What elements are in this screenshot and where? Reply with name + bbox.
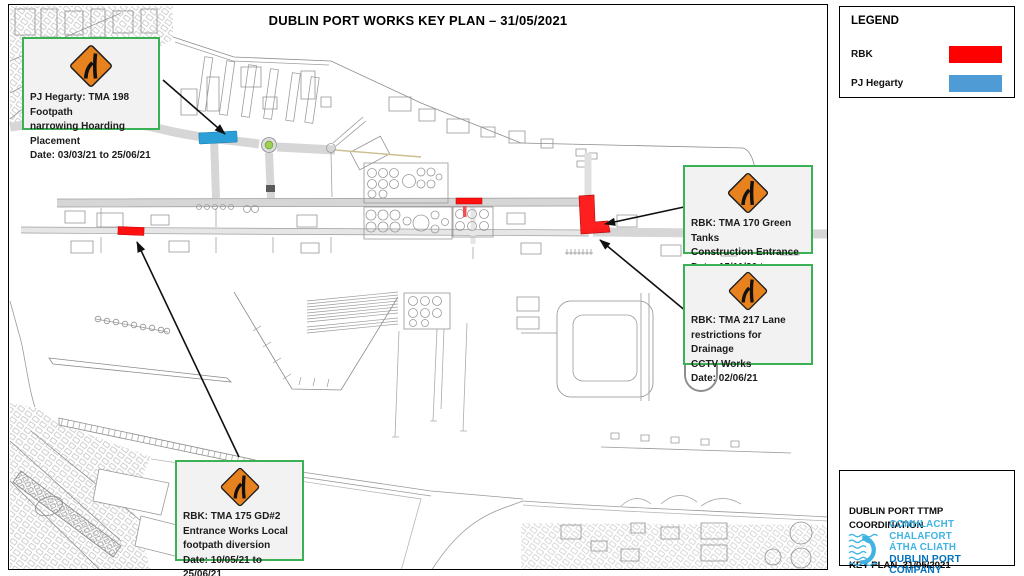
page-title: DUBLIN PORT WORKS KEY PLAN – 31/05/2021	[9, 13, 827, 28]
callout-text-line: RBK: TMA 175 GD#2	[183, 510, 298, 525]
legend-heading: LEGEND	[851, 15, 899, 27]
callout-text-line: Date: 02/06/21	[691, 372, 807, 387]
arrow-tma198	[163, 80, 225, 134]
callout-text-line: RBK: TMA 170 Green Tanks	[691, 217, 807, 246]
company-name-irish-2: ÁTHA CLIATH	[889, 542, 1014, 554]
callout-text-line: narrowing Hoarding Placement	[30, 120, 154, 149]
callout-tma198: PJ Hegarty: TMA 198 Footpath narrowing H…	[22, 37, 160, 130]
pj-hegarty-color-swatch	[949, 75, 1002, 92]
callout-text-line: Construction Entrance	[691, 246, 807, 261]
rbk-mid-road-zone-marker	[456, 198, 482, 217]
company-name-irish-1: COMHLACHT CHALAFORT	[889, 519, 1014, 542]
road-narrows-sign-icon	[726, 269, 770, 313]
callout-text-line: PJ Hegarty: TMA 198 Footpath	[30, 91, 154, 120]
roundabout-green-island	[265, 141, 273, 149]
callout-tma175: RBK: TMA 175 GD#2 Entrance Works Local f…	[175, 460, 304, 561]
pj-hegarty-tma198-zone-marker	[199, 131, 238, 144]
dublin-port-company-logo: COMHLACHT CHALAFORT ÁTHA CLIATH DUBLIN P…	[847, 519, 1014, 576]
company-name-english: DUBLIN PORT COMPANY	[889, 554, 1014, 576]
road-narrows-sign-icon	[725, 170, 771, 216]
title-block: DUBLIN PORT TTMP COORDINATION KEY PLAN 3…	[839, 470, 1015, 566]
key-plan-sheet: DUBLIN PORT WORKS KEY PLAN – 31/05/2021 …	[0, 0, 1024, 576]
legend-label: PJ Hegarty	[851, 78, 903, 89]
callout-text-line: restrictions for Drainage	[691, 329, 807, 358]
port-waves-icon	[847, 525, 885, 571]
arrow-tma175	[137, 242, 239, 457]
callout-tma217: RBK: TMA 217 Lane restrictions for Drain…	[683, 264, 813, 365]
callout-tma170: RBK: TMA 170 Green Tanks Construction En…	[683, 165, 813, 254]
callout-text-line: Date: 03/03/21 to 25/06/21	[30, 149, 154, 164]
callout-text-line: footpath diversion	[183, 539, 298, 554]
road-narrows-sign-icon	[218, 465, 262, 509]
legend: LEGEND RBK PJ Hegarty	[839, 6, 1015, 98]
legend-row-pj-hegarty: PJ Hegarty	[840, 75, 1014, 93]
callout-text-line: Entrance Works Local	[183, 525, 298, 540]
legend-label: RBK	[851, 49, 873, 60]
rbk-tma170-tma217-zone-marker	[579, 195, 610, 234]
rbk-tma175-zone-marker	[118, 227, 144, 236]
road-narrows-sign-icon	[67, 42, 115, 90]
callout-text-line: Date: 10/05/21 to 25/06/21	[183, 554, 298, 576]
callout-text-line: CCTV Works	[691, 358, 807, 373]
rbk-color-swatch	[949, 46, 1002, 63]
legend-row-rbk: RBK	[840, 46, 1014, 64]
callout-text-line: RBK: TMA 217 Lane	[691, 314, 807, 329]
